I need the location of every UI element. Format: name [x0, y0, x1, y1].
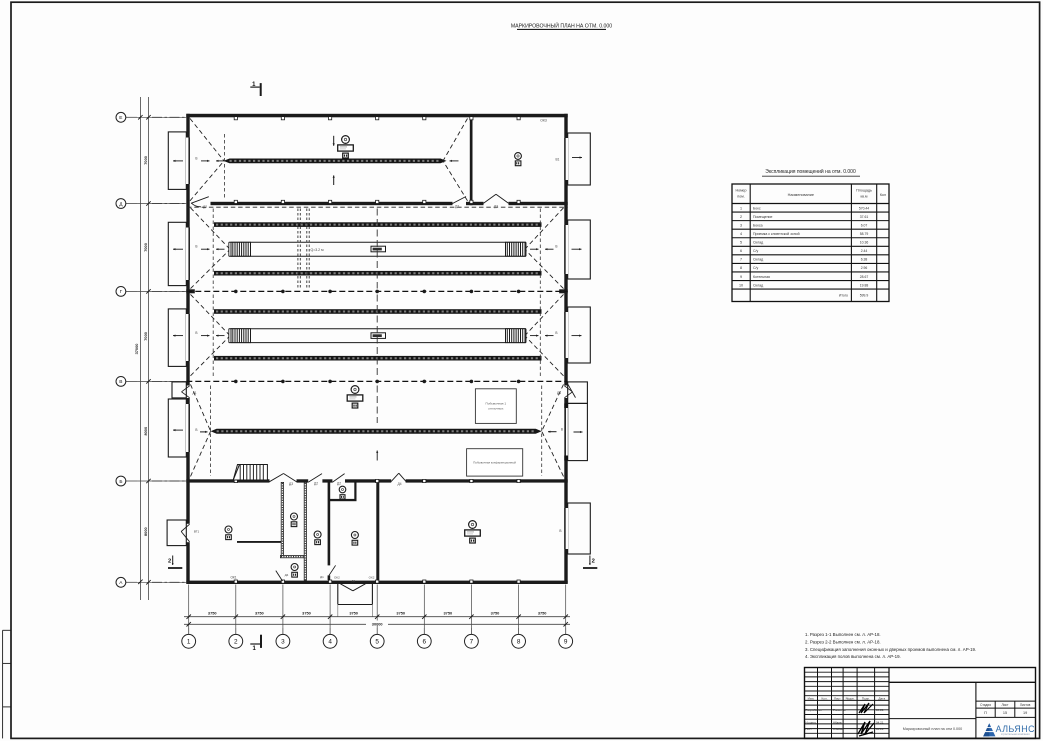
- svg-text:15: 15: [1003, 711, 1007, 715]
- svg-text:Q=3.2 м: Q=3.2 м: [311, 248, 325, 252]
- svg-text:4: 4: [740, 232, 742, 236]
- svg-text:9: 9: [740, 275, 742, 279]
- svg-text:строительная компания: строительная компания: [1001, 733, 1030, 736]
- svg-text:Котельная: Котельная: [753, 275, 770, 279]
- svg-text:В: В: [195, 428, 197, 432]
- svg-text:С/у: С/у: [753, 266, 759, 270]
- svg-text:Помещение: Помещение: [753, 215, 772, 219]
- svg-text:5: 5: [740, 241, 742, 245]
- svg-text:ОК3: ОК3: [540, 119, 547, 123]
- svg-text:пом.: пом.: [737, 195, 744, 199]
- svg-text:37000: 37000: [134, 344, 139, 355]
- svg-text:5: 5: [375, 639, 379, 646]
- svg-text:С/у: С/у: [753, 249, 759, 253]
- svg-text:Кол.: Кол.: [821, 696, 827, 700]
- svg-text:Абаева: Абаева: [833, 727, 844, 731]
- svg-text:Подп.: Подп.: [862, 696, 870, 700]
- svg-text:8000: 8000: [143, 527, 148, 536]
- svg-text:Побывочная 1: Побывочная 1: [486, 402, 507, 406]
- svg-text:3: 3: [740, 223, 742, 227]
- svg-text:Изм.: Изм.: [808, 696, 815, 700]
- svg-text:Д1: Д1: [557, 391, 561, 395]
- svg-text:ГИП: ГИП: [806, 727, 812, 731]
- svg-text:6.07: 6.07: [861, 223, 868, 227]
- svg-text:10: 10: [739, 283, 743, 287]
- svg-text:2.96: 2.96: [861, 266, 868, 270]
- svg-text:3750: 3750: [491, 611, 500, 616]
- svg-text:6: 6: [423, 639, 427, 646]
- svg-text:04.21: 04.21: [876, 721, 884, 725]
- svg-text:3750: 3750: [538, 611, 547, 616]
- svg-text:7: 7: [470, 639, 474, 646]
- svg-text:кв.м: кв.м: [861, 195, 868, 199]
- svg-text:ВТ1: ВТ1: [194, 530, 200, 534]
- svg-text:37.61: 37.61: [860, 215, 869, 219]
- svg-text:3750: 3750: [444, 611, 453, 616]
- svg-text:8000: 8000: [143, 427, 148, 436]
- svg-text:Д3: Д3: [494, 204, 498, 208]
- svg-text:Листов: Листов: [1020, 703, 1031, 707]
- svg-text:570.44: 570.44: [859, 206, 869, 210]
- svg-text:6.38: 6.38: [861, 258, 868, 262]
- svg-text:Маркировочный план на отм 0.00: Маркировочный план на отм 0.000: [903, 727, 962, 731]
- svg-text:9: 9: [564, 639, 568, 646]
- svg-text:Стадия: Стадия: [980, 703, 991, 707]
- svg-text:Ряскитов: Ряскитов: [833, 708, 846, 712]
- svg-text:Д1: Д1: [193, 391, 197, 395]
- svg-text:Д1: Д1: [320, 575, 324, 579]
- svg-text:Итого: Итого: [839, 294, 848, 298]
- svg-text:3: 3: [281, 639, 285, 646]
- svg-text:19.88: 19.88: [860, 283, 869, 287]
- svg-text:28.67: 28.67: [860, 275, 869, 279]
- svg-text:Кол: Кол: [880, 193, 886, 197]
- svg-text:Приемка с клиентской зоной: Приемка с клиентской зоной: [753, 232, 800, 236]
- svg-text:3. Спецификация заполнения око: 3. Спецификация заполнения оконных и две…: [805, 647, 976, 652]
- svg-text:Наименование: Наименование: [788, 193, 814, 197]
- svg-text:В: В: [555, 245, 557, 249]
- svg-text:Площадь: Площадь: [856, 189, 872, 193]
- svg-text:Бокс: Бокс: [753, 206, 761, 210]
- svg-text:В: В: [195, 156, 197, 160]
- svg-text:В1: В1: [556, 158, 560, 162]
- svg-text:3750: 3750: [302, 611, 311, 616]
- svg-text:Склад: Склад: [753, 258, 763, 262]
- svg-text:Абаев: Абаев: [833, 721, 842, 725]
- svg-text:Лист: Лист: [1002, 703, 1009, 707]
- svg-text:В: В: [561, 428, 563, 432]
- svg-text:04.21: 04.21: [876, 727, 884, 731]
- svg-text:1: 1: [187, 639, 191, 646]
- svg-text:4. Экспликация полов выполнена: 4. Экспликация полов выполнена см. л. АР…: [805, 654, 901, 659]
- svg-text:Лист: Лист: [834, 696, 841, 700]
- svg-text:04.21: 04.21: [876, 708, 884, 712]
- svg-text:Д2: Д2: [337, 482, 341, 486]
- svg-text:7000: 7000: [143, 332, 148, 341]
- svg-text:3750: 3750: [396, 611, 405, 616]
- svg-text:2: 2: [234, 639, 238, 646]
- svg-text:30000: 30000: [372, 621, 383, 626]
- svg-text:Номер: Номер: [735, 189, 746, 193]
- svg-text:МАРКИРОВОЧНЫЙ ПЛАН НА ОТМ. 0.0: МАРКИРОВОЧНЫЙ ПЛАН НА ОТМ. 0.000: [511, 22, 612, 30]
- svg-text:Склад: Склад: [753, 241, 763, 245]
- svg-text:3750: 3750: [255, 611, 264, 616]
- svg-text:В: В: [195, 245, 197, 249]
- svg-text:58.79: 58.79: [860, 232, 869, 236]
- svg-text:7: 7: [740, 258, 742, 262]
- svg-text:Н.контр.: Н.контр.: [806, 721, 818, 725]
- svg-text:П: П: [984, 711, 987, 715]
- svg-text:6: 6: [740, 249, 742, 253]
- svg-text:Д4: Д4: [398, 482, 402, 486]
- svg-text:1. Разрез 1-1 Выполнен см. л.: 1. Разрез 1-1 Выполнен см. л. АР-18.: [805, 632, 881, 637]
- svg-text:1: 1: [740, 206, 742, 210]
- svg-text:599.9: 599.9: [860, 294, 869, 298]
- svg-text:8: 8: [517, 639, 521, 646]
- svg-text:2.44: 2.44: [861, 249, 868, 253]
- svg-text:Г: Г: [120, 289, 123, 295]
- svg-text:2. Разрез 2-2 Выполнен см. л.: 2. Разрез 2-2 Выполнен см. л. АР-18.: [805, 639, 881, 644]
- svg-text:Склад: Склад: [753, 283, 763, 287]
- svg-text:Е: Е: [119, 115, 122, 121]
- svg-text:3750: 3750: [349, 611, 358, 616]
- svg-text:Побывочная конференционный: Побывочная конференционный: [473, 461, 516, 465]
- svg-text:Д2: Д2: [203, 205, 207, 209]
- svg-text:Разработал: Разработал: [806, 708, 823, 712]
- svg-text:Д4: Д4: [285, 573, 289, 577]
- svg-text:Дата: Дата: [878, 696, 885, 700]
- svg-text:ОК2: ОК2: [369, 575, 375, 579]
- svg-text:2: 2: [592, 558, 595, 564]
- svg-text:В: В: [555, 331, 557, 335]
- svg-text:3750: 3750: [208, 611, 217, 616]
- svg-text:В: В: [119, 379, 122, 385]
- svg-text:В: В: [559, 529, 561, 533]
- svg-text:19: 19: [1023, 711, 1027, 715]
- svg-text:Д2: Д2: [314, 482, 318, 486]
- svg-text:7000: 7000: [143, 243, 148, 252]
- svg-text:отелочных: отелочных: [488, 407, 504, 411]
- svg-text:Д4: Д4: [352, 579, 356, 583]
- svg-text:2: 2: [740, 215, 742, 219]
- svg-text:Д3: Д3: [289, 482, 293, 486]
- svg-text:ОК2: ОК2: [334, 575, 340, 579]
- svg-text:2: 2: [168, 558, 171, 564]
- svg-text:Бокса: Бокса: [753, 223, 763, 227]
- svg-text:Экспликация помещений на отм.: Экспликация помещений на отм. 0.000: [765, 168, 856, 175]
- svg-text:7000: 7000: [143, 156, 148, 165]
- svg-text:8: 8: [740, 266, 742, 270]
- svg-text:Б: Б: [119, 479, 122, 485]
- svg-text:ОК1: ОК1: [230, 575, 236, 579]
- svg-text:Д2: Д2: [455, 205, 459, 209]
- svg-text:4: 4: [328, 639, 332, 646]
- svg-text:10.36: 10.36: [860, 241, 869, 245]
- svg-text:№док.: №док.: [846, 696, 855, 700]
- svg-text:В: В: [195, 331, 197, 335]
